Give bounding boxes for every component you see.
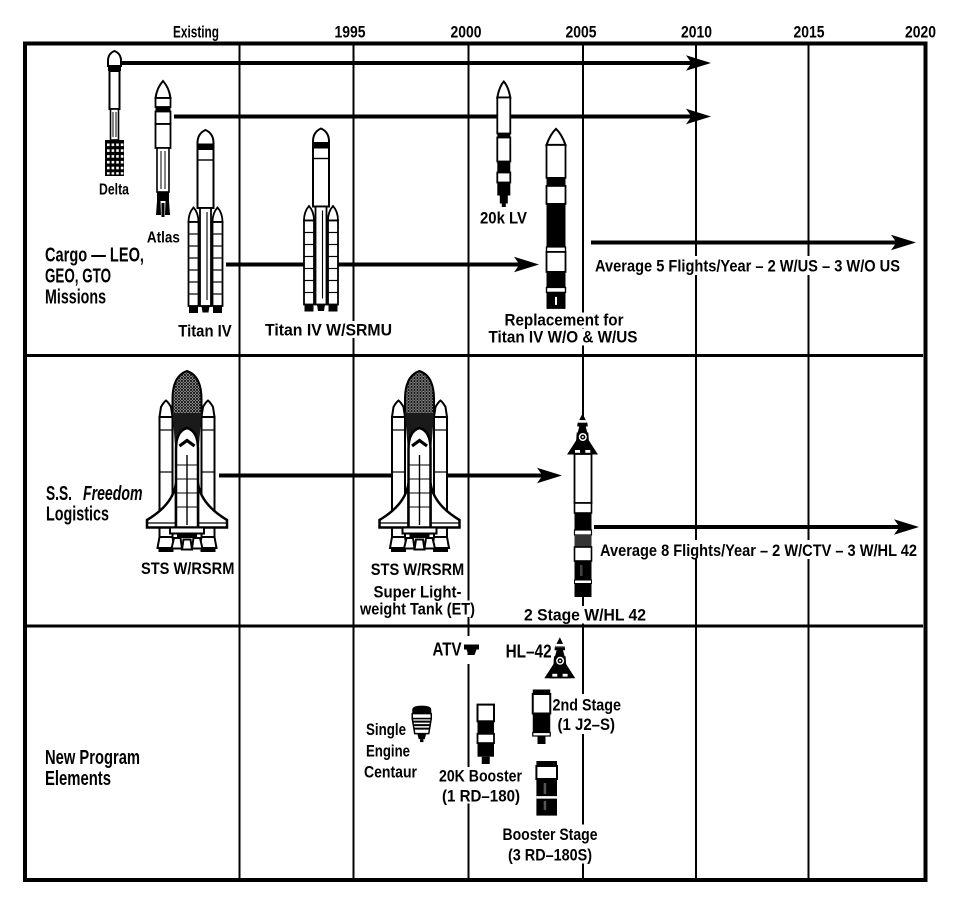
svg-text:2005: 2005 — [566, 23, 597, 42]
svg-text:2010: 2010 — [681, 23, 712, 42]
svg-text:weight Tank (ET): weight Tank (ET) — [359, 600, 475, 619]
svg-text:2020: 2020 — [905, 23, 936, 42]
svg-text:Cargo — LEO,: Cargo — LEO, — [45, 245, 144, 267]
svg-text:GEO, GTO: GEO, GTO — [45, 266, 111, 288]
svg-text:Titan IV W/SRMU: Titan IV W/SRMU — [265, 321, 392, 340]
svg-text:Engine: Engine — [366, 742, 410, 761]
svg-text:20K Booster: 20K Booster — [439, 767, 522, 786]
svg-text:(3 RD–180S): (3 RD–180S) — [508, 846, 592, 865]
svg-text:(1 RD–180): (1 RD–180) — [442, 787, 520, 806]
svg-text:20k LV: 20k LV — [480, 209, 528, 228]
svg-text:Delta: Delta — [99, 182, 129, 199]
svg-text:Centaur: Centaur — [364, 763, 417, 782]
svg-text:Titan IV: Titan IV — [178, 322, 232, 341]
svg-text:STS W/RSRM: STS W/RSRM — [141, 559, 235, 578]
svg-text:Freedom: Freedom — [83, 483, 143, 505]
svg-text:Booster Stage: Booster Stage — [503, 825, 598, 844]
svg-text:New Program: New Program — [45, 747, 140, 769]
svg-text:ATV: ATV — [433, 640, 462, 660]
svg-text:Logistics: Logistics — [46, 504, 109, 526]
svg-text:S.S.: S.S. — [46, 483, 72, 505]
svg-text:STS W/RSRM: STS W/RSRM — [371, 560, 465, 579]
svg-text:2 Stage W/HL 42: 2 Stage W/HL 42 — [524, 606, 646, 625]
svg-text:Titan IV W/O & W/US: Titan IV W/O & W/US — [489, 328, 638, 347]
svg-text:(1 J2–S): (1 J2–S) — [558, 715, 616, 734]
svg-text:Single: Single — [366, 720, 406, 739]
svg-text:Missions: Missions — [45, 287, 106, 309]
svg-text:Average 5 Flights/Year – 2 W/U: Average 5 Flights/Year – 2 W/US – 3 W/O … — [595, 258, 900, 276]
svg-text:Average 8 Flights/Year – 2 W/C: Average 8 Flights/Year – 2 W/CTV – 3 W/H… — [600, 542, 917, 560]
svg-text:Atlas: Atlas — [147, 230, 180, 247]
svg-text:2nd Stage: 2nd Stage — [553, 696, 622, 715]
svg-text:Elements: Elements — [45, 768, 111, 790]
svg-text:HL–42: HL–42 — [506, 642, 552, 662]
svg-text:2000: 2000 — [451, 23, 482, 42]
svg-text:1995: 1995 — [335, 23, 366, 42]
svg-text:Existing: Existing — [173, 23, 219, 42]
svg-text:2015: 2015 — [794, 23, 825, 42]
